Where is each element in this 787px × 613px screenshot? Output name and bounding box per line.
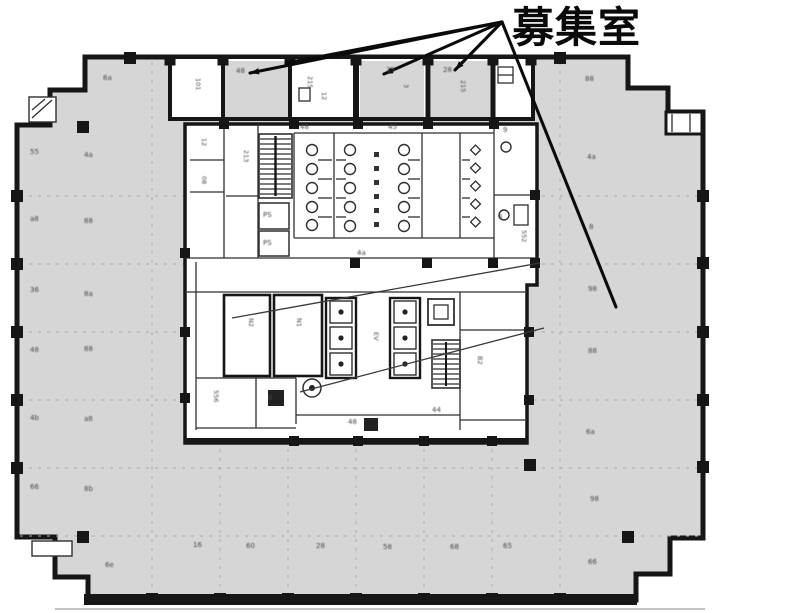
svg-text:8: 8 [589, 223, 593, 231]
svg-text:48: 48 [30, 346, 39, 354]
elevator-bank-right [390, 298, 420, 378]
svg-text:88: 88 [84, 217, 93, 225]
svg-text:215: 215 [306, 76, 314, 88]
building-core [185, 124, 537, 443]
floorplan-page: 6a554aa888368a48884ba8668b6e166028586865… [0, 0, 787, 613]
service-dark-box [364, 418, 378, 431]
svg-text:48: 48 [300, 123, 309, 131]
svg-text:8a: 8a [84, 290, 93, 298]
svg-text:8: 8 [268, 394, 272, 402]
svg-text:45: 45 [388, 123, 397, 131]
svg-text:68: 68 [450, 543, 459, 551]
svg-text:16: 16 [193, 541, 202, 549]
svg-text:28: 28 [443, 66, 452, 74]
svg-text:88: 88 [588, 347, 597, 355]
svg-text:28: 28 [316, 542, 325, 550]
svg-text:2: 2 [441, 352, 449, 356]
svg-text:35: 35 [386, 66, 395, 74]
svg-text:6a: 6a [103, 74, 112, 82]
page-title: 募集室 [512, 0, 641, 55]
svg-text:66: 66 [30, 483, 39, 491]
svg-text:101: 101 [194, 78, 202, 90]
svg-text:12: 12 [200, 138, 208, 146]
svg-text:4b: 4b [30, 414, 39, 422]
top-room-strip [170, 57, 533, 119]
svg-text:60: 60 [246, 542, 255, 550]
elevator-bank-left [326, 298, 356, 378]
svg-text:EV: EV [372, 332, 380, 341]
svg-text:N1: N1 [295, 318, 303, 327]
svg-text:3: 3 [402, 84, 410, 88]
svg-text:98: 98 [590, 495, 599, 503]
svg-text:48: 48 [236, 67, 245, 75]
svg-text:55: 55 [30, 148, 39, 156]
svg-text:36: 36 [30, 286, 39, 294]
svg-text:PS: PS [263, 239, 272, 247]
svg-text:a8: a8 [30, 215, 39, 223]
svg-text:552: 552 [520, 230, 528, 242]
svg-text:9: 9 [503, 126, 507, 134]
svg-text:556: 556 [212, 390, 220, 402]
svg-text:213: 213 [242, 150, 250, 162]
svg-text:65: 65 [503, 542, 512, 550]
svg-text:6e: 6e [105, 561, 114, 569]
svg-text:66: 66 [588, 558, 597, 566]
svg-text:PS: PS [263, 211, 272, 219]
svg-text:4a: 4a [84, 151, 93, 159]
svg-text:12: 12 [320, 92, 328, 100]
svg-text:88: 88 [84, 345, 93, 353]
svg-text:44: 44 [432, 406, 441, 414]
svg-text:6: 6 [498, 213, 503, 221]
svg-text:48: 48 [348, 418, 357, 426]
svg-text:8b: 8b [84, 485, 93, 493]
svg-text:B2: B2 [476, 356, 484, 365]
floorplan-drawing: 6a554aa888368a48884ba8668b6e166028586865… [0, 0, 787, 613]
svg-text:215: 215 [459, 80, 467, 92]
svg-text:a8: a8 [84, 415, 93, 423]
svg-text:98: 98 [588, 285, 597, 293]
svg-text:6a: 6a [586, 428, 595, 436]
svg-text:4a: 4a [357, 249, 366, 257]
svg-text:88: 88 [585, 75, 594, 83]
svg-text:58: 58 [383, 543, 392, 551]
svg-text:4a: 4a [587, 153, 596, 161]
svg-text:08: 08 [200, 176, 208, 184]
svg-text:N2: N2 [247, 318, 255, 327]
